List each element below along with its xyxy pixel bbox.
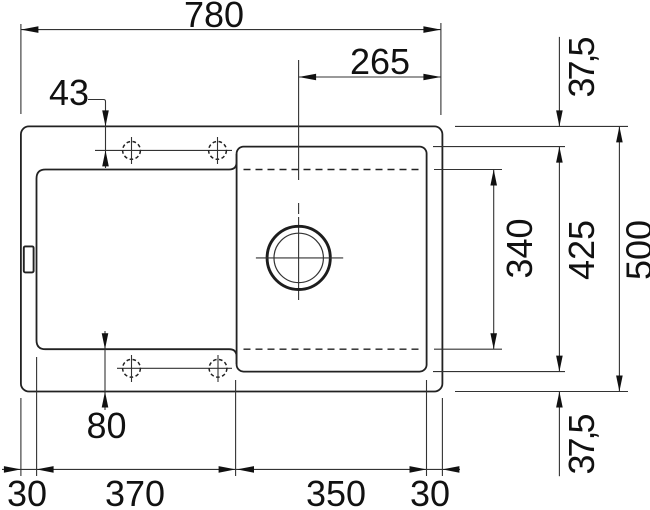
svg-text:500: 500 — [619, 220, 650, 280]
svg-text:37,5: 37,5 — [561, 414, 602, 475]
svg-text:43: 43 — [49, 72, 89, 113]
svg-text:265: 265 — [350, 41, 410, 82]
svg-text:340: 340 — [499, 218, 540, 278]
svg-text:37,5: 37,5 — [561, 37, 602, 98]
svg-text:425: 425 — [561, 220, 602, 280]
svg-text:370: 370 — [105, 473, 165, 510]
svg-text:780: 780 — [184, 0, 244, 35]
svg-text:30: 30 — [410, 473, 450, 510]
svg-text:80: 80 — [86, 405, 126, 446]
svg-text:350: 350 — [306, 473, 366, 510]
svg-text:30: 30 — [7, 473, 47, 510]
